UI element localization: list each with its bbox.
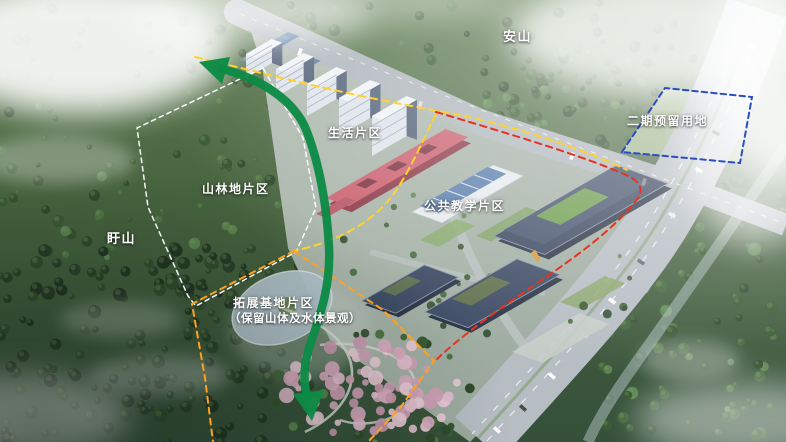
masterplan-rendering: 安山 盱山 二期预留用地 生活片区 山林地片区 公共教学片区 拓展基地片区 （保…: [0, 0, 786, 442]
corner-vignette: [0, 0, 786, 442]
site-plan-canvas: [0, 0, 786, 442]
